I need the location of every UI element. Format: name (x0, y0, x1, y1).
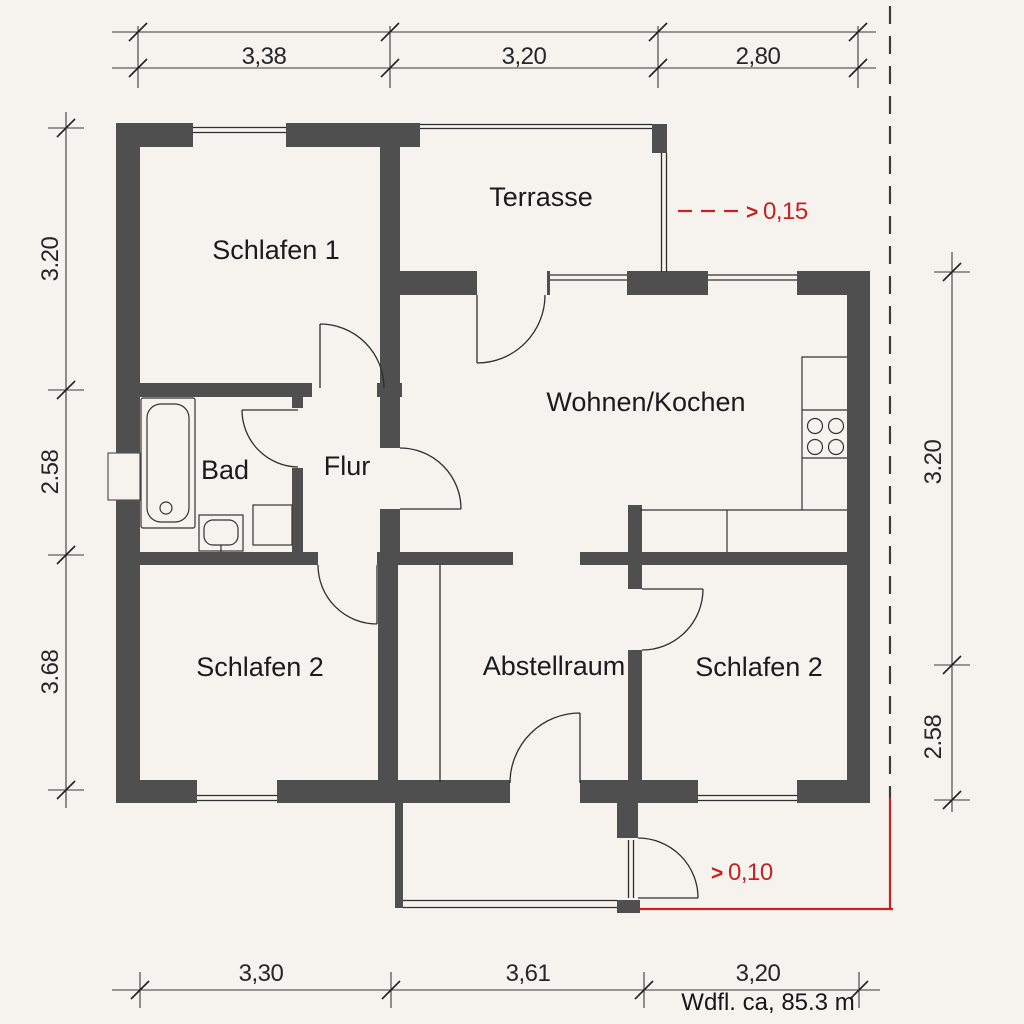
setback-bottom-arrow: > (711, 862, 723, 885)
room-label-abstellraum: Abstellraum (483, 651, 626, 681)
wall-entry-post (617, 900, 640, 913)
window-schlafen2-left (197, 780, 277, 803)
floor-plan-svg: 3,38 3,20 2,80 3.20 2.58 3.68 3.20 2.58 (0, 0, 1024, 1024)
room-label-wohnen-kochen: Wohnen/Kochen (546, 387, 745, 417)
setback-bottom-value: 0,10 (728, 859, 773, 886)
opening-flur-schlafen2-door (318, 552, 377, 565)
dim-bottom-1: 3,30 (239, 960, 284, 987)
floor-plan-canvas: 3,38 3,20 2,80 3.20 2.58 3.68 3.20 2.58 (0, 0, 1024, 1024)
terrasse-post (652, 124, 667, 153)
wall-outer-right (847, 271, 870, 803)
dim-left-2: 2.58 (37, 449, 64, 494)
opening-wohnen-abstellraum (513, 552, 580, 565)
dim-top-1: 3,38 (242, 43, 287, 70)
room-label-flur: Flur (324, 451, 371, 481)
wall-entry-right-stub (617, 803, 638, 838)
dim-right-2: 2.58 (920, 714, 947, 759)
background (0, 0, 1024, 1024)
wall-entry-left (395, 803, 403, 908)
setback-top-arrow: > (746, 201, 758, 224)
wall-schlafen1-flur (140, 383, 312, 397)
window-schlafen2-right (698, 780, 797, 803)
wall-spine-lower (378, 565, 398, 783)
room-label-terrasse: Terrasse (489, 182, 593, 212)
room-label-bad: Bad (201, 455, 249, 485)
opening-flur-wohnen-door (380, 448, 400, 509)
dim-left-3: 3.68 (37, 649, 64, 694)
window-wohnen-2 (708, 271, 797, 295)
dim-bottom-2: 3,61 (506, 960, 551, 987)
window-wohnen-1 (550, 271, 627, 295)
setback-top-value: 0,15 (763, 198, 808, 225)
dim-right-1: 3.20 (920, 439, 947, 484)
dim-top-2: 3,20 (502, 43, 547, 70)
dim-bottom-3: 3,20 (736, 960, 781, 987)
room-label-schlafen2-left: Schlafen 2 (196, 652, 324, 682)
window-bad-niche (108, 453, 140, 500)
opening-schlafen1-door (312, 383, 377, 397)
window-schlafen1 (193, 123, 286, 147)
room-label-schlafen1: Schlafen 1 (212, 235, 340, 265)
wall-schlafen1-flur-stub (377, 383, 402, 397)
opening-schlafen2-right-door (628, 589, 642, 650)
area-note: Wdfl. ca, 85.3 m (681, 989, 854, 1016)
dim-left-1: 3.20 (37, 236, 64, 281)
wall-main-divider (116, 552, 870, 565)
dim-top-3: 2,80 (736, 43, 781, 70)
opening-abstellraum-entry (510, 780, 580, 803)
room-label-schlafen2-right: Schlafen 2 (695, 652, 823, 682)
opening-terrasse-door (477, 271, 547, 295)
opening-bad-door (292, 408, 303, 468)
